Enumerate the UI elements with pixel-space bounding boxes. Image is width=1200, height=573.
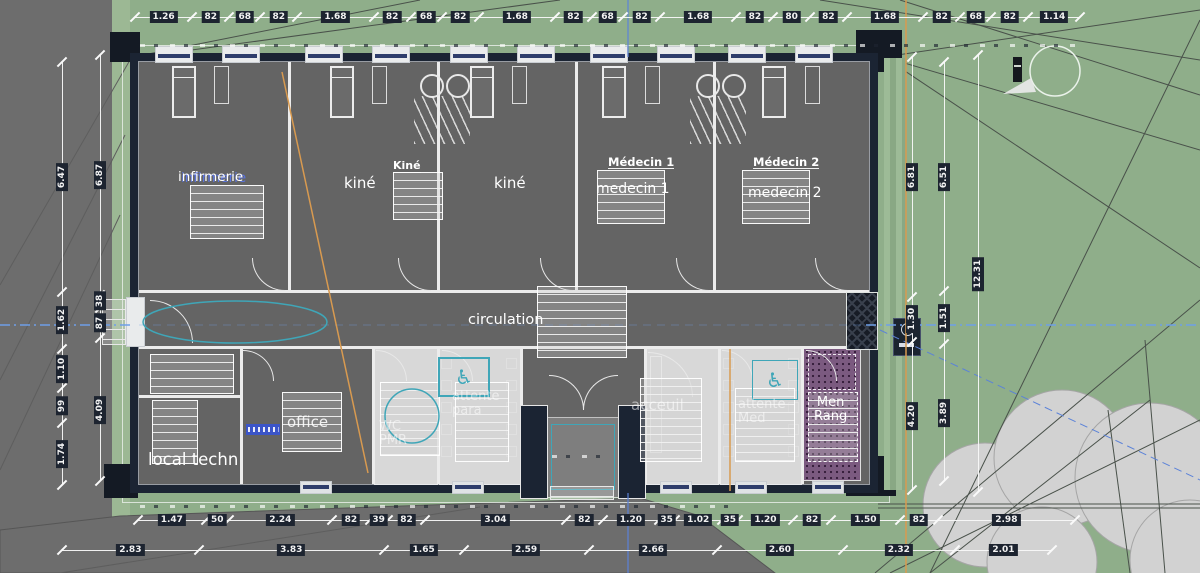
dim-label: 39 (369, 514, 388, 526)
chair (723, 424, 734, 435)
chair (723, 446, 734, 457)
dim-label: 82 (269, 11, 288, 23)
dim-label: 2.01 (989, 544, 1017, 556)
dim-tick (842, 12, 853, 23)
dim-label: 1.20 (751, 514, 779, 526)
dim-label: 1.14 (1040, 11, 1068, 23)
selected-text-highlight[interactable] (246, 424, 280, 435)
window (155, 46, 193, 63)
dim-tick (255, 12, 266, 23)
dim-tick (655, 12, 666, 23)
dim-label: 82 (803, 514, 822, 526)
partition-wall (372, 349, 375, 484)
dim-label: 82 (910, 514, 929, 526)
room-label-office: office (287, 415, 328, 431)
dim-line-right-mid: 6.511.513.89 (938, 62, 950, 481)
dim-line-left-inner: 6.8738874.09 (94, 55, 106, 481)
men-line2: Rang (814, 409, 847, 424)
porch-micro-dims (552, 455, 610, 458)
dim-label: 82 (575, 514, 594, 526)
dim-label: 82 (201, 11, 220, 23)
dim-tick (939, 339, 950, 350)
dim-tick (473, 12, 484, 23)
chair (441, 402, 452, 413)
room-label-attente-para: attentepara (452, 390, 500, 417)
room-label-circulation: circulation (468, 313, 544, 328)
attente-para-line2: para (452, 403, 482, 418)
dim-label: 1.68 (321, 11, 349, 23)
chair (441, 424, 452, 435)
dim-label: 2.24 (266, 514, 294, 526)
dim-tick (378, 545, 389, 556)
dim-label: 12.31 (972, 256, 984, 290)
dim-label: 2.98 (992, 514, 1020, 526)
dim-label: 1.65 (410, 544, 438, 556)
window (812, 481, 844, 494)
dim-label: 2.66 (639, 544, 667, 556)
dim-tick (420, 515, 431, 526)
dim-tick (95, 333, 106, 344)
dim-label: 82 (451, 11, 470, 23)
chair (506, 358, 517, 369)
room-label-medecin-2: medecin 2 (748, 186, 822, 201)
micro-dim-row-bottom (140, 505, 740, 508)
dim-tick (932, 515, 943, 526)
dim-label: 1.20 (617, 514, 645, 526)
window (735, 481, 767, 494)
window (517, 46, 555, 63)
dim-label: 6.47 (56, 163, 68, 191)
dim-tick (57, 383, 68, 394)
partition-wall (801, 349, 804, 484)
dim-tick (193, 545, 204, 556)
dim-label: 82 (632, 11, 651, 23)
dim-label: 6.51 (938, 162, 950, 190)
dim-tick (405, 12, 416, 23)
dim-tick (826, 515, 837, 526)
dim-tick (955, 12, 966, 23)
dim-label: 82 (819, 11, 838, 23)
room-label-men-rang: MenRang (814, 396, 847, 423)
dim-label: 80 (782, 11, 801, 23)
dim-label: 82 (383, 11, 402, 23)
dim-tick (950, 545, 961, 556)
dim-label: 6.87 (94, 161, 106, 189)
dim-tick (731, 12, 742, 23)
window (452, 481, 484, 494)
dim-label: 3.83 (277, 544, 305, 556)
dim-tick (327, 515, 338, 526)
dim-label: 82 (564, 11, 583, 23)
dim-label: 2.83 (116, 544, 144, 556)
dim-tick (895, 515, 906, 526)
dim-label: 1.51 (938, 303, 950, 331)
dim-label: 1.68 (871, 11, 899, 23)
floor-plan-canvas: ♿ ♿ infirmerie infirmerie kiné Kiné kiné… (0, 0, 1200, 573)
room-label-medecin-1: medecin 1 (596, 182, 670, 197)
dim-label: 2.32 (885, 544, 913, 556)
dim-tick (292, 12, 303, 23)
room-info-table (597, 170, 665, 224)
dim-label: 1.50 (851, 514, 879, 526)
window (372, 46, 410, 63)
dim-label: 68 (235, 11, 254, 23)
dim-line-bottom-inner: 1.47502.248239823.04821.20351.02351.2082… (138, 514, 1075, 526)
window (450, 46, 488, 63)
dim-tick (768, 12, 779, 23)
dim-tick (1023, 12, 1034, 23)
dim-tick (986, 12, 997, 23)
attente-med-line2: Med (738, 411, 765, 426)
dim-label: 1.68 (503, 11, 531, 23)
dim-label: 1.02 (684, 514, 712, 526)
technical-shaft (846, 292, 878, 350)
room-label-attente-med: attenteMed (738, 398, 786, 425)
room-label-acceuil: acceuil (631, 398, 684, 414)
window (590, 46, 628, 63)
dim-tick (587, 12, 598, 23)
window (728, 46, 766, 63)
dim-line-right-inner: 6.811.304.20 (906, 57, 918, 490)
dim-tick (788, 515, 799, 526)
dim-label: 2.59 (512, 544, 540, 556)
dim-label: 82 (1000, 11, 1019, 23)
dim-line-top: 1.268268821.688268821.688268821.68828082… (135, 11, 1080, 23)
room-info-table (393, 172, 443, 220)
room-title-medecin-2: Médecin 2 (753, 156, 819, 169)
room-info-table (640, 378, 702, 462)
dim-tick (583, 545, 594, 556)
dim-line-bottom-outer: 2.833.831.652.592.662.602.322.01 (62, 544, 1052, 556)
dim-tick (458, 545, 469, 556)
dim-label: 82 (932, 11, 951, 23)
dim-label: 1.62 (56, 306, 68, 334)
hedge-strip (884, 58, 906, 490)
dim-label: 1.10 (56, 354, 68, 382)
dim-tick (368, 12, 379, 23)
dim-line-right-outer: 12.31 (972, 55, 984, 492)
dim-tick (907, 291, 918, 302)
chair (723, 358, 734, 369)
wheelchair-icon: ♿ (752, 360, 798, 400)
dim-label: 68 (417, 11, 436, 23)
dim-tick (187, 12, 198, 23)
dim-label: 1.68 (684, 11, 712, 23)
dim-label: 4.20 (906, 402, 918, 430)
room-info-table (190, 185, 264, 239)
micro-dim-row-top (140, 44, 1078, 47)
dim-label: 87 (94, 314, 106, 333)
room-label-kine-2: kiné (494, 176, 526, 192)
dim-tick (550, 12, 561, 23)
chair (723, 402, 734, 413)
window (795, 46, 833, 63)
dim-label: 1.26 (149, 11, 177, 23)
dim-label: 35 (657, 514, 676, 526)
window (222, 46, 260, 63)
room-label-local-techn: local techn (148, 451, 238, 468)
dim-label: 68 (966, 11, 985, 23)
dim-tick (57, 344, 68, 355)
dim-label: 1.30 (906, 305, 918, 333)
dim-label: 82 (746, 11, 765, 23)
dim-tick (224, 12, 235, 23)
window (660, 481, 692, 494)
dim-label: 2.60 (766, 544, 794, 556)
entry-step (550, 486, 614, 500)
dim-label: 82 (342, 514, 361, 526)
dim-label: 50 (208, 514, 227, 526)
dim-label: 4.09 (94, 396, 106, 424)
dim-label: 1.47 (158, 514, 186, 526)
room-title-kine: Kiné (393, 160, 421, 173)
dim-tick (560, 515, 571, 526)
dim-label: 99 (56, 396, 68, 415)
dim-tick (918, 12, 929, 23)
room-info-table (537, 286, 627, 358)
dim-tick (939, 286, 950, 297)
dim-tick (907, 337, 918, 348)
dim-tick (598, 515, 609, 526)
window (657, 46, 695, 63)
porch-wall (520, 405, 548, 499)
dim-label: 3.89 (938, 398, 950, 426)
dim-tick (436, 12, 447, 23)
dim-label: 1.74 (56, 440, 68, 468)
chair (723, 380, 734, 391)
dim-tick (712, 545, 723, 556)
dim-label: 38 (94, 292, 106, 311)
dim-tick (618, 12, 629, 23)
dim-label: 35 (720, 514, 739, 526)
dim-tick (804, 12, 815, 23)
dim-tick (57, 286, 68, 297)
partition-wall (718, 349, 721, 484)
window (305, 46, 343, 63)
chair (441, 446, 452, 457)
dim-tick (57, 418, 68, 429)
dim-tick (837, 545, 848, 556)
wc-line2: PMR (379, 433, 407, 448)
dim-label: 68 (598, 11, 617, 23)
room-title-medecin-1: Médecin 1 (608, 156, 674, 169)
dim-label: 3.04 (481, 514, 509, 526)
room-label-kine-1: kiné (344, 176, 376, 192)
room-label-infirmerie: infirmerie (178, 170, 243, 184)
dim-label: 82 (397, 514, 416, 526)
room-label-wc-pmr: WCPMR (379, 420, 407, 447)
dim-label: 6.81 (906, 163, 918, 191)
room-info-table (150, 354, 234, 394)
dim-line-left-outer: 6.471.621.10991.74 (56, 62, 68, 485)
